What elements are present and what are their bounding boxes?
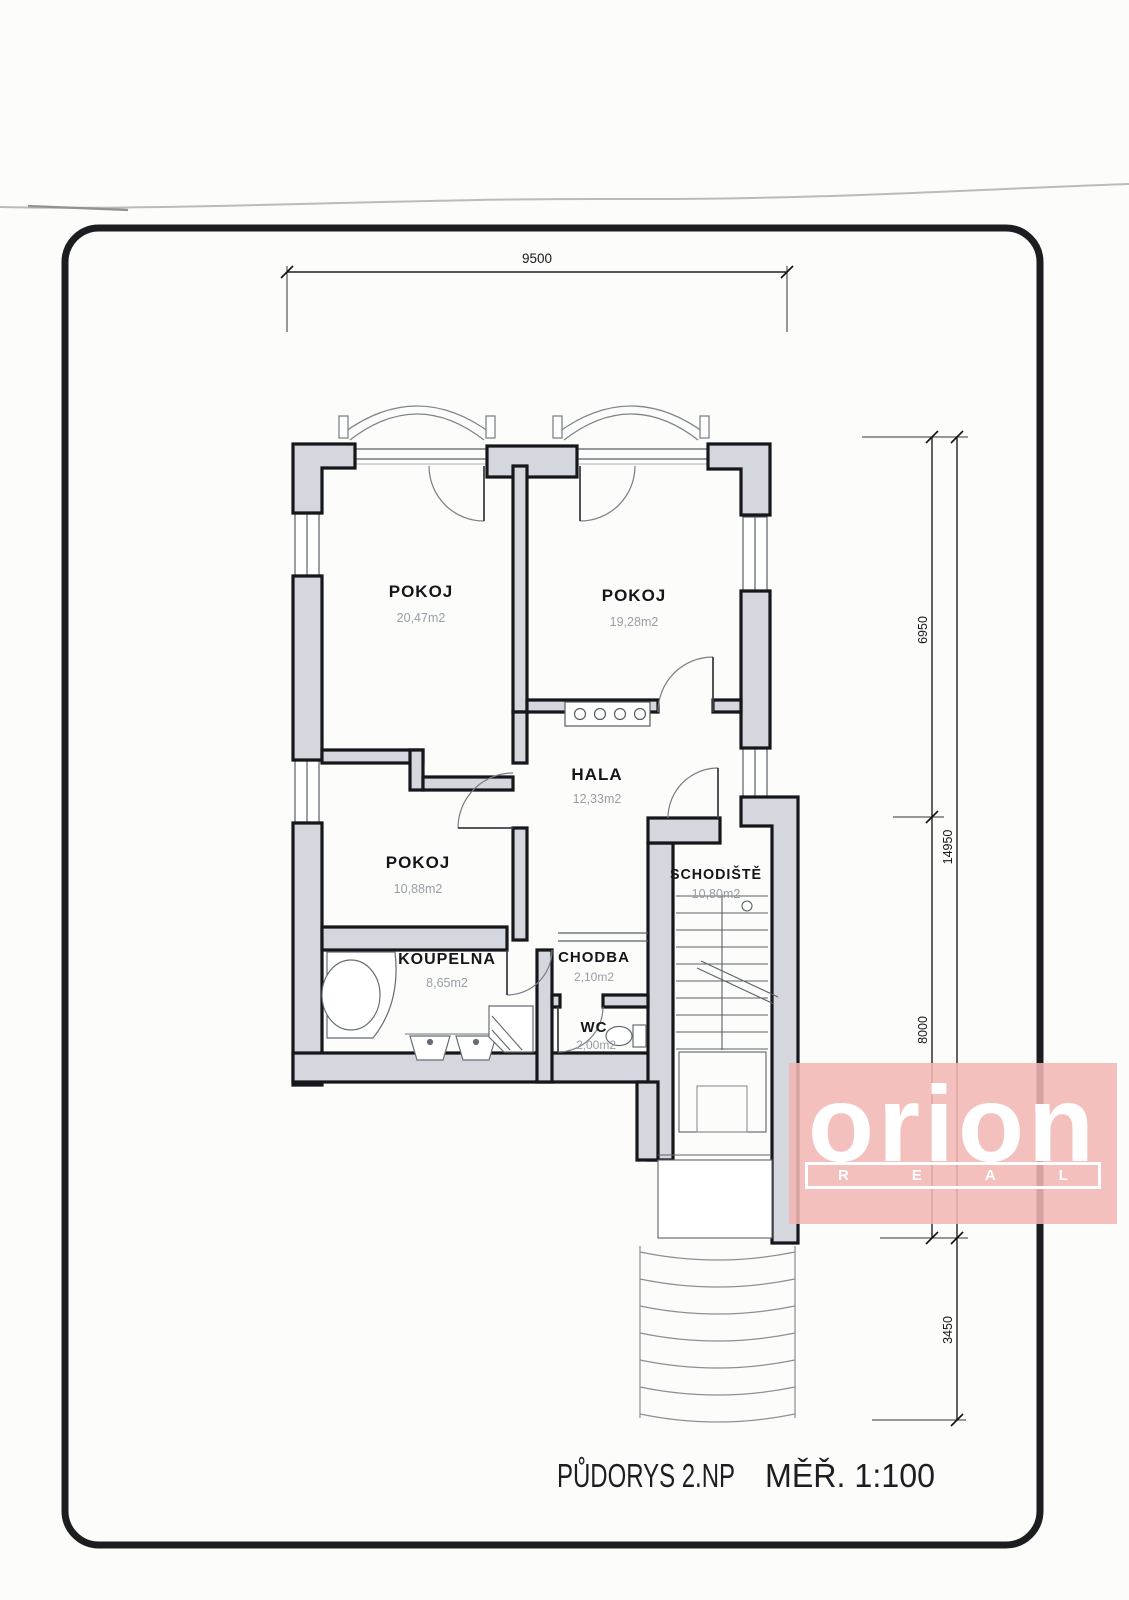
dim-top-width: 9500: [522, 251, 552, 266]
room-name: WC: [581, 1019, 608, 1036]
wall-step-c: [423, 777, 513, 790]
staircase: [658, 894, 778, 1238]
wall-hala-top-b: [713, 700, 741, 712]
room-label-koupelna: KOUPELNA 8,65m2: [398, 951, 496, 990]
wall-left-pier-1: [293, 576, 322, 760]
entry-steps: [640, 1246, 795, 1422]
wall-top-left-pier: [293, 444, 355, 513]
room-area: 2,00m2: [576, 1038, 616, 1052]
wall-stair-top: [648, 818, 720, 843]
room-name: CHODBA: [558, 949, 630, 966]
scale-label: MĚŘ. 1:100: [765, 1457, 935, 1494]
shower: [489, 1006, 533, 1052]
logo-letter-e: E: [912, 1167, 922, 1184]
hala-radiator: [565, 702, 650, 726]
window-lines: [295, 449, 767, 822]
logo-letter-r: R: [838, 1167, 849, 1184]
room-name: HALA: [571, 765, 622, 784]
dimension-right: 6950 14950 8000 3450: [862, 431, 968, 1426]
scan-artifact-lines: [0, 184, 1129, 210]
room-name: POKOJ: [389, 582, 454, 601]
wall-stair-bottom-left: [637, 1082, 658, 1160]
room-name: POKOJ: [386, 853, 451, 872]
room-area: 19,28m2: [610, 615, 659, 629]
wall-koupelna-right: [537, 950, 552, 1082]
wall-room-divider: [513, 466, 527, 712]
dim-right-total: 14950: [941, 830, 955, 865]
dim-right-entry: 3450: [941, 1316, 955, 1344]
wall-top-right-pier: [708, 444, 770, 515]
wall-hala-divider-b: [513, 828, 527, 940]
walls: [293, 444, 798, 1243]
room-area: 12,33m2: [573, 792, 622, 806]
dim-right-upper: 6950: [916, 616, 930, 644]
room-label-chodba: CHODBA 2,10m2: [558, 949, 630, 984]
room-area: 8,65m2: [426, 976, 468, 990]
room-name: POKOJ: [602, 586, 667, 605]
room-area: 2,10m2: [574, 970, 614, 984]
bay-windows: [339, 406, 709, 440]
wall-hala-divider-a: [513, 712, 527, 763]
wall-koupelna-top: [322, 927, 507, 950]
logo-letter-a: A: [985, 1167, 996, 1184]
logo-brand-text: orion: [789, 1093, 1117, 1160]
wall-step-b: [410, 750, 423, 790]
orion-real-logo: orion R E A L: [789, 1063, 1117, 1224]
toilet-tank: [633, 1025, 646, 1047]
scanned-floorplan-page: { "document": { "drawing_label": "PŮDORY…: [0, 0, 1129, 1600]
wall-left-pier-2: [293, 823, 322, 1085]
room-name: SCHODIŠTĚ: [670, 865, 762, 883]
floorplan-canvas: 9500 6950 14950 8000 3450: [0, 0, 1129, 1600]
dimension-top: 9500: [281, 251, 793, 332]
wall-right-pier: [741, 591, 770, 748]
room-label-pokoj2: POKOJ 19,28m2: [602, 586, 667, 629]
logo-letter-l: L: [1059, 1167, 1068, 1184]
room-area: 10,80m2: [692, 887, 741, 901]
room-label-pokoj3: POKOJ 10,88m2: [386, 853, 451, 896]
drawing-title: PŮDORYS 2.NP MĚŘ. 1:100: [557, 1456, 935, 1494]
room-area: 20,47m2: [397, 611, 446, 625]
wall-step-a: [322, 750, 423, 763]
room-label-hala: HALA 12,33m2: [571, 765, 622, 806]
drawing-label: PŮDORYS 2.NP: [557, 1456, 735, 1494]
wall-wc-a: [552, 995, 560, 1007]
wall-wc-b: [603, 995, 648, 1007]
room-area: 10,88m2: [394, 882, 443, 896]
wall-top-center-pier: [487, 446, 577, 477]
room-name: KOUPELNA: [398, 951, 496, 968]
room-label-pokoj1: POKOJ 20,47m2: [389, 582, 454, 625]
dim-right-lower: 8000: [916, 1016, 930, 1044]
